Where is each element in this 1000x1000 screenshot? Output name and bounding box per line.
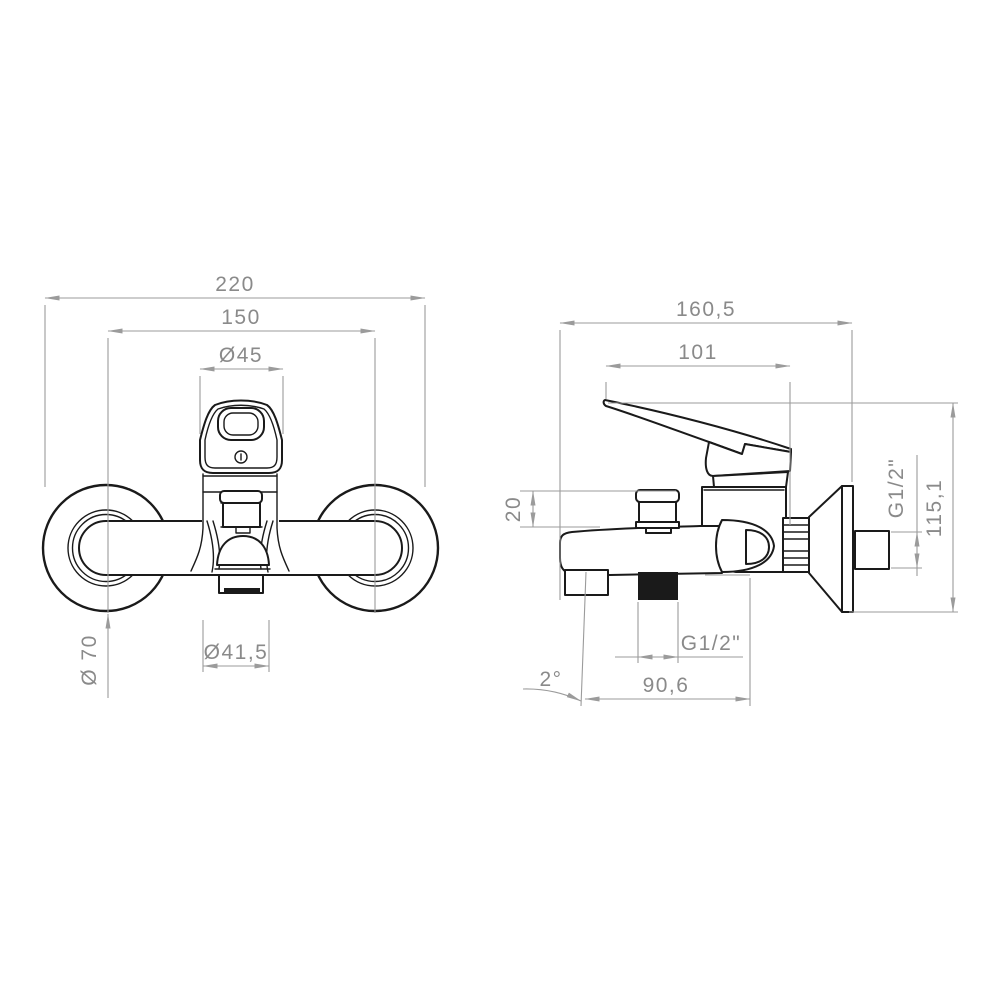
- escutcheon-plate-side: [842, 486, 853, 612]
- lever-blade-side: [604, 400, 791, 454]
- dim-label-aerator-diameter: Ø41,5: [204, 641, 269, 664]
- dim-label-overall-depth: 160,5: [676, 298, 736, 321]
- dim-label-overall-height: 115,1: [923, 479, 946, 538]
- diverter-cap-side: [636, 490, 679, 502]
- hose-stub-threaded: [638, 572, 678, 600]
- front-view-parts: [43, 401, 438, 612]
- dim-label-flange-diameter: Ø 70: [78, 634, 101, 686]
- aerator-front-band: [224, 588, 260, 593]
- diverter-stem-side: [646, 528, 671, 533]
- aerator-side: [565, 570, 608, 595]
- escutcheon-cone-side: [809, 486, 842, 612]
- side-view: 160,5 101 20 115,1 G1/2" G1/2" 90,6: [502, 298, 958, 706]
- spout-side: [560, 526, 722, 575]
- dim-label-handle-diameter: Ø45: [219, 344, 263, 367]
- dim-label-wall-thread: G1/2": [885, 458, 908, 518]
- dim-label-hose-thread: G1/2": [681, 632, 741, 655]
- dim-label-diverter-height: 20: [502, 496, 525, 522]
- technical-drawing-canvas: 220 150 Ø45 Ø 70 Ø41,5: [0, 0, 1000, 1000]
- dim-label-lever-length: 101: [678, 341, 718, 364]
- diverter-cap-front: [220, 491, 262, 503]
- dim-label-overall-width: 220: [215, 273, 255, 296]
- wall-pipe: [855, 531, 889, 569]
- side-view-parts: [560, 400, 889, 612]
- dim-label-spout-reach: 90,6: [643, 674, 690, 697]
- union-nut-side: [783, 518, 809, 572]
- drawing-svg: 220 150 Ø45 Ø 70 Ø41,5: [0, 0, 1000, 1000]
- dim-label-center-distance: 150: [221, 306, 261, 329]
- diverter-body-front: [223, 503, 260, 527]
- dim-label-spout-angle: 2°: [539, 668, 562, 691]
- front-view: 220 150 Ø45 Ø 70 Ø41,5: [43, 273, 438, 698]
- diverter-body-side: [639, 502, 676, 522]
